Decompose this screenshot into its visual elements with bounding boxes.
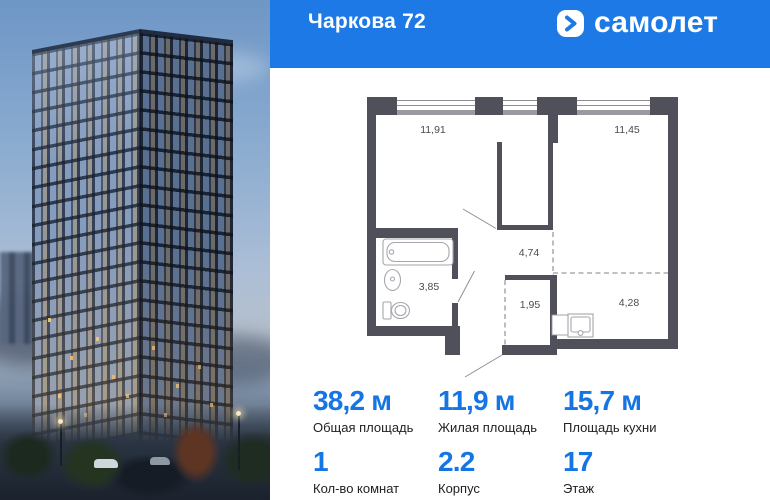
project-title: Чаркова 72 xyxy=(308,9,426,34)
stat-value: 38,2 м xyxy=(313,387,413,415)
room-area-label: 11,91 xyxy=(420,124,446,136)
room-area-label: 1,95 xyxy=(520,299,541,311)
car xyxy=(150,457,170,465)
room-area-label: 11,45 xyxy=(614,124,640,136)
stat-value: 2.2 xyxy=(438,448,480,476)
room-area-label: 3,85 xyxy=(419,281,440,293)
toilet xyxy=(383,302,410,319)
stat-value: 15,7 м xyxy=(563,387,656,415)
header-bar: Чаркова 72 самолет xyxy=(270,0,770,68)
info-panel: Чаркова 72 самолет xyxy=(270,0,770,500)
tower-left-face xyxy=(32,32,140,455)
stat-kitchen-area: 15,7 м Площадь кухни xyxy=(563,387,656,435)
stat-building: 2.2 Корпус xyxy=(438,448,480,496)
stat-label: Жилая площадь xyxy=(438,420,537,435)
stat-floor: 17 Этаж xyxy=(563,448,594,496)
stat-rooms: 1 Кол-во комнат xyxy=(313,448,399,496)
stat-label: Общая площадь xyxy=(313,420,413,435)
lamp-light xyxy=(236,411,241,416)
stat-label: Этаж xyxy=(563,481,594,496)
bathtub xyxy=(383,239,453,265)
room-area-label: 4,74 xyxy=(519,247,540,259)
stat-value: 1 xyxy=(313,448,399,476)
samolet-logo-text: самолет xyxy=(594,8,718,38)
samolet-chevron-icon xyxy=(557,10,584,37)
lamp-light xyxy=(58,419,63,424)
stat-value: 11,9 м xyxy=(438,387,537,415)
car xyxy=(94,459,118,468)
kitchen-sink xyxy=(568,314,593,337)
stat-label: Кол-во комнат xyxy=(313,481,399,496)
lit-windows xyxy=(0,0,3,4)
tower-corner-edge xyxy=(139,30,141,450)
bathroom-sink xyxy=(385,270,401,291)
building-photo xyxy=(0,0,270,500)
room-area-label: 4,28 xyxy=(619,297,640,309)
street-lamp xyxy=(60,422,62,466)
stat-label: Корпус xyxy=(438,481,480,496)
trees-and-ground xyxy=(0,404,270,500)
stat-total-area: 38,2 м Общая площадь xyxy=(313,387,413,435)
window xyxy=(397,101,650,116)
samolet-logo: самолет xyxy=(557,8,718,38)
utility-niche xyxy=(552,315,569,335)
door-swing-line xyxy=(458,209,502,377)
stat-label: Площадь кухни xyxy=(563,420,656,435)
floor-plan: 11,91 11,45 4,74 3,85 1,95 4,28 xyxy=(367,93,678,383)
street-lamp xyxy=(238,414,240,470)
tower-right-face xyxy=(140,32,233,457)
stat-living-area: 11,9 м Жилая площадь xyxy=(438,387,537,435)
stat-value: 17 xyxy=(563,448,594,476)
apartment-listing-card: Чаркова 72 самолет xyxy=(0,0,770,500)
